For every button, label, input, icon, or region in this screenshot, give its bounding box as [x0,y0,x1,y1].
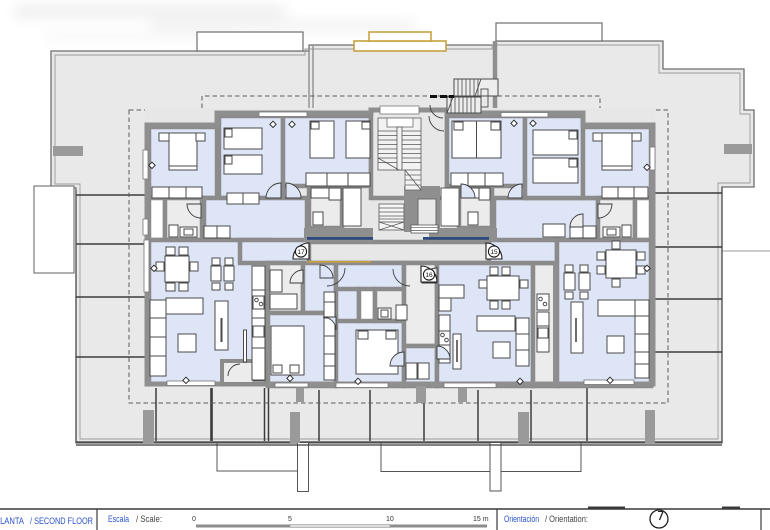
svg-text:/ SECOND FLOOR: / SECOND FLOOR [30,516,93,527]
svg-text:PLANTA: PLANTA [0,516,25,527]
svg-text:15: 15 [490,249,498,256]
svg-text:17: 17 [297,249,305,256]
svg-text:Escala: Escala [108,514,129,524]
svg-text:Orientación: Orientación [504,514,539,524]
svg-text:0: 0 [192,516,196,523]
svg-text:15 m: 15 m [473,516,489,523]
svg-text:5: 5 [288,516,292,523]
svg-text:/ Orientation:: / Orientation: [545,514,588,524]
svg-text:/ Scale:: / Scale: [136,514,162,524]
svg-text:10: 10 [386,516,394,523]
svg-text:16: 16 [425,272,433,279]
